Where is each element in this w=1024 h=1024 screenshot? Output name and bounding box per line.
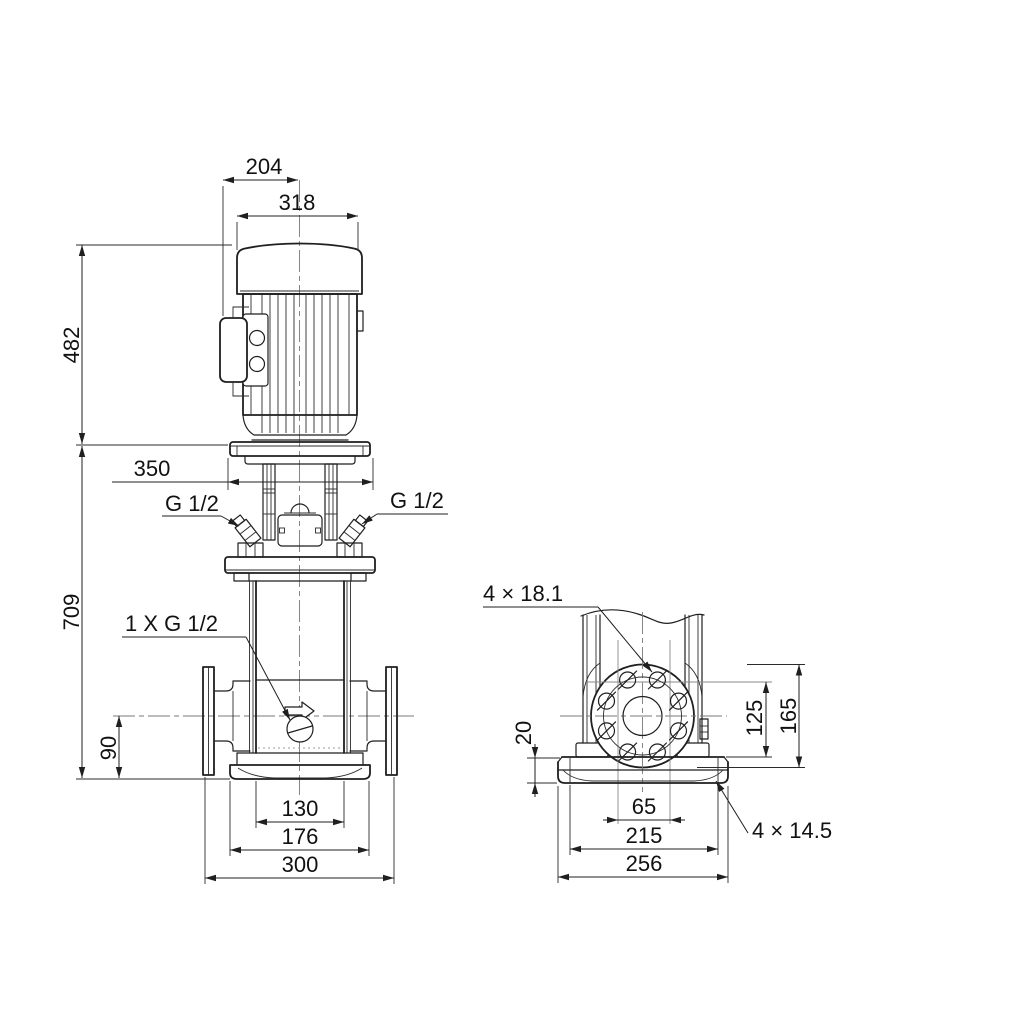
front-view: 204 318 482 709 350 G 1/2 G 1/2 xyxy=(59,154,448,884)
drain-port-label: 1 X G 1/2 xyxy=(125,611,218,636)
motor-end-bell xyxy=(243,415,357,435)
dim-20-label: 20 xyxy=(511,721,536,745)
port-label-right: G 1/2 xyxy=(390,488,444,513)
gauge-port-plug-right xyxy=(339,514,369,547)
motor-fins xyxy=(262,295,338,433)
flange-holes-label: 4 × 18.1 xyxy=(483,581,563,606)
pump-body xyxy=(203,581,397,779)
pedestal xyxy=(230,753,370,779)
dim-65-label: 65 xyxy=(632,794,656,819)
dim-215-label: 215 xyxy=(626,823,663,848)
dim-256-label: 256 xyxy=(626,851,663,876)
cable-entry-hole xyxy=(250,331,265,346)
dim-130-label: 130 xyxy=(282,796,319,821)
staybolt-nuts xyxy=(238,543,362,557)
port-label-left: G 1/2 xyxy=(165,491,219,516)
motor-stool-flange xyxy=(230,442,370,456)
dim-318-label: 318 xyxy=(279,190,316,215)
pump-head xyxy=(225,442,375,581)
pump-head-flange xyxy=(225,557,375,573)
port-flange-right xyxy=(350,667,397,775)
drawing-svg: 204 318 482 709 350 G 1/2 G 1/2 xyxy=(0,0,1024,1024)
side-view: 4 × 18.1 20 125 165 65 xyxy=(483,581,832,883)
technical-drawing: 204 318 482 709 350 G 1/2 G 1/2 xyxy=(0,0,1024,1024)
motor xyxy=(220,244,363,441)
shaft-dome xyxy=(291,504,309,513)
coupling-guard xyxy=(263,464,337,540)
drain-plug xyxy=(285,702,314,742)
dim-165-label: 165 xyxy=(776,698,801,735)
dim-350-label: 350 xyxy=(134,456,171,481)
port-flange-left xyxy=(203,667,250,775)
gauge-port-plug-left xyxy=(231,514,261,547)
dim-90-label: 90 xyxy=(96,736,121,760)
dim-204-label: 204 xyxy=(246,154,283,179)
base-holes-label: 4 × 14.5 xyxy=(752,818,832,843)
dim-125-label: 125 xyxy=(742,700,767,737)
nameplate xyxy=(700,719,708,739)
dim-176-label: 176 xyxy=(282,824,319,849)
terminal-box xyxy=(220,307,268,396)
dim-482-label: 482 xyxy=(59,327,84,364)
dim-300-label: 300 xyxy=(282,852,319,877)
dim-709-label: 709 xyxy=(59,594,84,631)
cable-entry-hole xyxy=(250,357,265,372)
